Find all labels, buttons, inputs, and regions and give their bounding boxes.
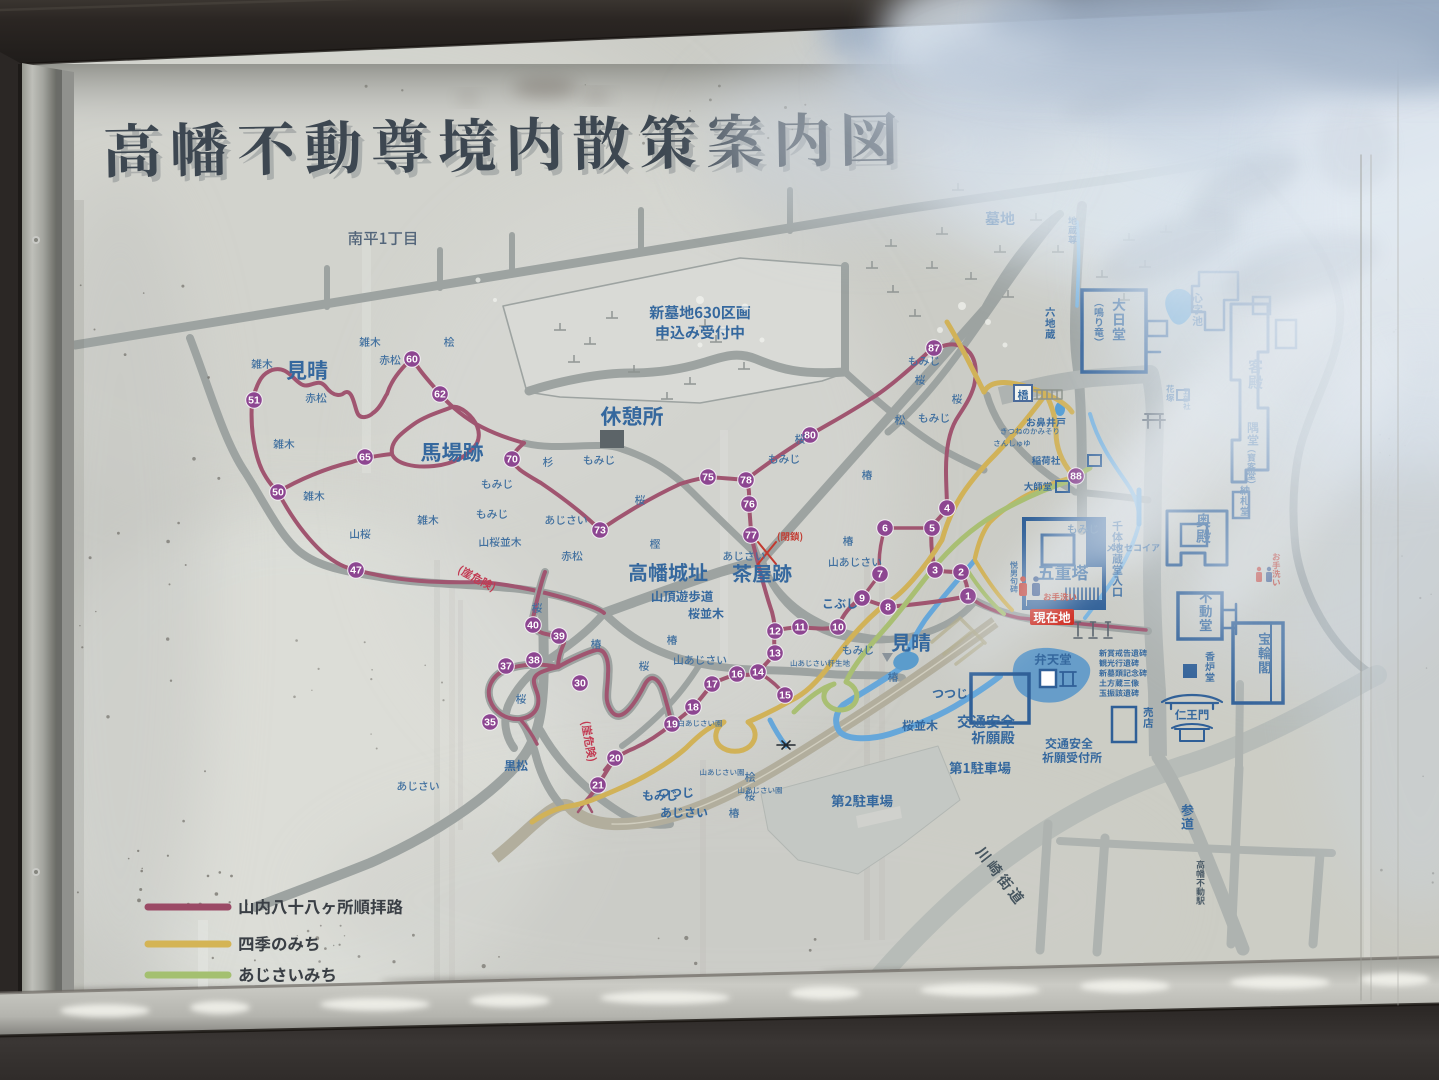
svg-text:35: 35: [484, 717, 496, 729]
svg-text:30: 30: [574, 678, 586, 690]
svg-text:88: 88: [1070, 471, 1082, 483]
svg-text:4: 4: [944, 503, 950, 515]
svg-text:75: 75: [702, 472, 714, 484]
svg-text:62: 62: [434, 389, 446, 401]
svg-text:50: 50: [272, 487, 284, 499]
svg-text:70: 70: [506, 454, 518, 466]
svg-text:80: 80: [804, 430, 816, 442]
svg-text:76: 76: [743, 499, 755, 511]
svg-text:60: 60: [406, 354, 418, 366]
svg-text:14: 14: [752, 667, 764, 679]
svg-text:77: 77: [745, 530, 757, 542]
svg-text:20: 20: [609, 753, 621, 765]
svg-text:9: 9: [859, 593, 865, 605]
svg-text:39: 39: [553, 631, 565, 643]
svg-text:65: 65: [359, 452, 371, 464]
svg-text:2: 2: [958, 567, 964, 579]
svg-text:18: 18: [687, 702, 699, 714]
svg-text:6: 6: [882, 523, 888, 535]
svg-text:10: 10: [832, 622, 844, 634]
svg-text:7: 7: [877, 569, 883, 581]
svg-text:8: 8: [885, 602, 891, 614]
svg-text:78: 78: [740, 475, 752, 487]
svg-text:21: 21: [592, 780, 604, 792]
svg-text:17: 17: [706, 679, 718, 691]
svg-text:73: 73: [594, 525, 606, 537]
svg-text:19: 19: [666, 719, 678, 731]
svg-text:12: 12: [769, 626, 781, 638]
svg-text:47: 47: [350, 565, 362, 577]
svg-text:87: 87: [928, 343, 940, 355]
svg-text:1: 1: [965, 591, 971, 603]
svg-text:13: 13: [769, 648, 781, 660]
svg-text:3: 3: [932, 565, 938, 577]
svg-text:37: 37: [500, 661, 512, 673]
svg-text:15: 15: [779, 690, 791, 702]
svg-text:51: 51: [248, 395, 260, 407]
svg-text:38: 38: [528, 655, 540, 667]
svg-text:11: 11: [794, 622, 805, 634]
svg-text:40: 40: [527, 620, 539, 632]
svg-text:16: 16: [731, 669, 743, 681]
svg-text:5: 5: [929, 523, 935, 535]
